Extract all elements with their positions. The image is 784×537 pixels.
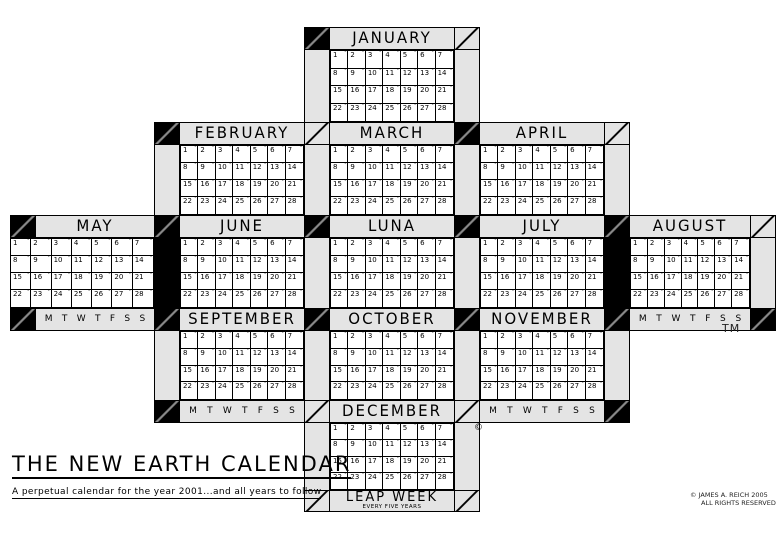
- day-cell: 28: [286, 290, 303, 307]
- day-cell: 13: [418, 440, 435, 456]
- day-number: 27: [114, 291, 123, 298]
- day-cell: 5: [251, 332, 268, 349]
- day-number: 26: [253, 383, 262, 390]
- month-title-bar: MAY: [36, 215, 154, 238]
- day-cell: 7: [586, 332, 603, 349]
- day-number: 19: [403, 458, 412, 465]
- day-cell: 8: [331, 163, 348, 180]
- day-number: 16: [200, 367, 209, 374]
- day-number: 20: [420, 274, 429, 281]
- day-cell: 10: [216, 256, 233, 273]
- day-cell: 11: [72, 256, 92, 273]
- day-cell: 17: [516, 180, 533, 197]
- day-cell: 26: [251, 290, 268, 307]
- day-number: 21: [438, 181, 447, 188]
- day-cell: 14: [286, 349, 303, 366]
- day-number: 21: [588, 274, 597, 281]
- day-cell: 21: [586, 180, 603, 197]
- day-number: 24: [518, 383, 527, 390]
- day-cell: 23: [31, 290, 51, 307]
- day-cell: 18: [533, 273, 550, 290]
- day-number: 20: [114, 274, 123, 281]
- day-cell: 6: [418, 146, 435, 163]
- corner-square: [304, 215, 330, 238]
- corner-square-diagonal: [304, 400, 330, 423]
- day-number: 9: [200, 257, 204, 264]
- weekday-footer: MTWTFSS: [454, 400, 630, 423]
- weekday-label: M: [45, 315, 53, 324]
- day-number: 9: [350, 70, 354, 77]
- day-number: 7: [438, 240, 442, 247]
- day-number: 13: [420, 70, 429, 77]
- day-cell: 8: [331, 349, 348, 366]
- day-cell: 26: [551, 197, 568, 214]
- day-number: 22: [333, 291, 342, 298]
- day-number: 10: [368, 257, 377, 264]
- day-number: 27: [420, 383, 429, 390]
- weekday-label: T: [507, 407, 513, 416]
- day-cell: 18: [383, 366, 400, 383]
- month-grid-row: 1234567891011121314151617181920212223242…: [454, 145, 630, 215]
- day-number: 13: [717, 257, 726, 264]
- corner-square-diagonal: [454, 490, 480, 512]
- day-cell: 6: [568, 332, 585, 349]
- side-strip: [454, 50, 480, 122]
- day-number: 21: [135, 274, 144, 281]
- day-cell: 14: [586, 256, 603, 273]
- day-number: 10: [368, 441, 377, 448]
- corner-square-diagonal: [304, 122, 330, 145]
- month-title: APRIL: [516, 126, 569, 142]
- corner-square: [454, 215, 480, 238]
- day-cell: 20: [418, 273, 435, 290]
- day-cell: 26: [401, 382, 418, 399]
- corner-square: [604, 215, 630, 238]
- day-cell: 21: [286, 366, 303, 383]
- day-cell: 15: [631, 273, 648, 290]
- month-title: NOVEMBER: [491, 312, 593, 328]
- month-title-bar: MARCH: [330, 122, 454, 145]
- day-cell: 14: [732, 256, 749, 273]
- day-number: 22: [333, 198, 342, 205]
- day-cell: 6: [568, 146, 585, 163]
- day-cell: 1: [331, 51, 348, 69]
- day-number: 15: [183, 367, 192, 374]
- day-cell: 18: [533, 366, 550, 383]
- day-cell: 12: [551, 349, 568, 366]
- day-number: 16: [200, 181, 209, 188]
- day-cell: 4: [233, 239, 250, 256]
- day-number: 25: [535, 198, 544, 205]
- day-cell: 10: [366, 440, 383, 456]
- day-cell: 2: [198, 146, 215, 163]
- calendar-poster: JANUARY123456789101112131415161718192021…: [0, 0, 784, 537]
- day-cell: 14: [286, 256, 303, 273]
- day-cell: 2: [348, 51, 365, 69]
- corner-square: [454, 122, 480, 145]
- day-cell: 5: [401, 146, 418, 163]
- day-grid: 1234567891011121314151617181920212223242…: [480, 238, 604, 308]
- day-number: 16: [350, 181, 359, 188]
- day-cell: 24: [516, 197, 533, 214]
- corner-square: [154, 400, 180, 423]
- day-number: 19: [94, 274, 103, 281]
- day-cell: 1: [181, 332, 198, 349]
- day-number: 4: [385, 52, 389, 59]
- day-cell: 25: [383, 473, 400, 489]
- day-cell: 6: [268, 146, 285, 163]
- day-number: 26: [553, 198, 562, 205]
- month-title: JULY: [523, 219, 562, 235]
- day-cell: 28: [436, 104, 453, 122]
- day-number: 9: [350, 350, 354, 357]
- day-number: 13: [420, 257, 429, 264]
- day-number: 23: [500, 291, 509, 298]
- day-cell: 13: [418, 69, 435, 87]
- day-cell: 10: [516, 349, 533, 366]
- day-cell: 8: [331, 69, 348, 87]
- day-cell: 13: [418, 349, 435, 366]
- day-number: 18: [235, 367, 244, 374]
- day-number: 21: [288, 274, 297, 281]
- day-number: 3: [518, 147, 522, 154]
- day-number: 14: [438, 164, 447, 171]
- day-cell: 23: [348, 382, 365, 399]
- day-cell: 26: [401, 197, 418, 214]
- day-number: 13: [270, 350, 279, 357]
- day-cell: 18: [383, 86, 400, 104]
- weekday-label: T: [95, 315, 101, 324]
- day-cell: 15: [331, 180, 348, 197]
- day-number: 26: [253, 198, 262, 205]
- day-cell: 20: [568, 273, 585, 290]
- day-number: 4: [385, 425, 389, 432]
- day-number: 17: [218, 274, 227, 281]
- day-cell: 7: [286, 332, 303, 349]
- day-number: 22: [183, 383, 192, 390]
- day-cell: 3: [516, 146, 533, 163]
- day-cell: 24: [516, 382, 533, 399]
- day-cell: 24: [216, 197, 233, 214]
- day-cell: 6: [418, 332, 435, 349]
- day-cell: 28: [586, 290, 603, 307]
- day-cell: 20: [268, 180, 285, 197]
- day-cell: 8: [181, 256, 198, 273]
- day-cell: 19: [551, 366, 568, 383]
- day-number: 6: [570, 147, 574, 154]
- day-number: 28: [438, 474, 447, 481]
- day-number: 12: [403, 70, 412, 77]
- day-number: 18: [385, 458, 394, 465]
- day-number: 11: [74, 257, 83, 264]
- day-grid: 1234567891011121314151617181920212223242…: [330, 238, 454, 308]
- day-number: 5: [553, 240, 557, 247]
- day-cell: 9: [198, 163, 215, 180]
- day-number: 8: [183, 350, 187, 357]
- day-number: 26: [403, 105, 412, 112]
- day-number: 19: [403, 87, 412, 94]
- day-number: 1: [183, 240, 187, 247]
- day-cell: 23: [648, 290, 665, 307]
- day-cell: 13: [268, 163, 285, 180]
- day-cell: 15: [11, 273, 31, 290]
- day-number: 15: [483, 367, 492, 374]
- day-number: 13: [114, 257, 123, 264]
- day-number: 5: [253, 333, 257, 340]
- day-number: 3: [218, 147, 222, 154]
- day-number: 18: [535, 181, 544, 188]
- day-cell: 1: [481, 146, 498, 163]
- day-cell: 19: [401, 86, 418, 104]
- day-number: 24: [368, 105, 377, 112]
- day-number: 6: [420, 52, 424, 59]
- day-cell: 11: [233, 256, 250, 273]
- day-cell: 1: [481, 332, 498, 349]
- day-cell: 20: [568, 180, 585, 197]
- day-number: 11: [385, 350, 394, 357]
- day-cell: 14: [586, 349, 603, 366]
- day-cell: 2: [648, 239, 665, 256]
- day-number: 12: [94, 257, 103, 264]
- day-number: 21: [588, 181, 597, 188]
- month-title: OCTOBER: [348, 312, 435, 328]
- day-number: 14: [438, 350, 447, 357]
- day-cell: 8: [631, 256, 648, 273]
- day-cell: 20: [418, 366, 435, 383]
- day-number: 11: [684, 257, 693, 264]
- day-cell: 2: [498, 332, 515, 349]
- day-number: 28: [734, 291, 743, 298]
- day-cell: 16: [198, 366, 215, 383]
- day-cell: 19: [698, 273, 715, 290]
- day-number: 28: [438, 198, 447, 205]
- day-number: 6: [270, 240, 274, 247]
- day-cell: 9: [498, 256, 515, 273]
- day-cell: 8: [481, 163, 498, 180]
- day-cell: 1: [331, 424, 348, 440]
- day-number: 24: [518, 198, 527, 205]
- day-grid: 1234567891011121314151617181920212223242…: [330, 145, 454, 215]
- day-cell: 12: [401, 440, 418, 456]
- day-number: 14: [734, 257, 743, 264]
- day-cell: 21: [436, 366, 453, 383]
- day-number: 28: [438, 291, 447, 298]
- day-number: 18: [535, 274, 544, 281]
- day-number: 25: [235, 198, 244, 205]
- day-number: 14: [288, 257, 297, 264]
- day-cell: 3: [216, 146, 233, 163]
- day-cell: 1: [331, 239, 348, 256]
- day-cell: 6: [268, 239, 285, 256]
- weekday-label: S: [273, 407, 279, 416]
- day-number: 21: [438, 458, 447, 465]
- day-number: 28: [438, 105, 447, 112]
- day-number: 20: [420, 181, 429, 188]
- day-cell: 27: [418, 382, 435, 399]
- day-cell: 26: [251, 197, 268, 214]
- day-number: 8: [333, 70, 337, 77]
- day-cell: 6: [568, 239, 585, 256]
- day-number: 24: [368, 198, 377, 205]
- day-number: 4: [235, 240, 239, 247]
- day-number: 17: [368, 181, 377, 188]
- day-cell: 9: [348, 256, 365, 273]
- day-cell: 25: [533, 290, 550, 307]
- day-cell: 10: [366, 163, 383, 180]
- day-number: 8: [483, 350, 487, 357]
- day-cell: 11: [533, 163, 550, 180]
- day-cell: 15: [331, 86, 348, 104]
- day-cell: 9: [198, 349, 215, 366]
- day-number: 15: [333, 181, 342, 188]
- day-number: 8: [333, 164, 337, 171]
- day-cell: 4: [682, 239, 699, 256]
- month-grid-row: 1234567891011121314151617181920212223242…: [454, 331, 630, 400]
- corner-square: [304, 308, 330, 331]
- day-cell: 27: [418, 290, 435, 307]
- day-cell: 25: [233, 382, 250, 399]
- day-cell: 14: [133, 256, 153, 273]
- day-number: 12: [553, 257, 562, 264]
- day-cell: 5: [551, 332, 568, 349]
- day-number: 12: [253, 350, 262, 357]
- day-cell: 19: [251, 180, 268, 197]
- day-cell: 22: [331, 382, 348, 399]
- day-number: 14: [438, 70, 447, 77]
- day-number: 6: [420, 425, 424, 432]
- day-cell: 28: [436, 197, 453, 214]
- day-number: 22: [333, 105, 342, 112]
- day-cell: 13: [418, 163, 435, 180]
- day-number: 20: [420, 87, 429, 94]
- day-cell: 13: [715, 256, 732, 273]
- day-cell: 23: [498, 290, 515, 307]
- day-cell: 6: [418, 239, 435, 256]
- day-number: 13: [270, 257, 279, 264]
- day-cell: 23: [348, 197, 365, 214]
- weekday-label: W: [523, 407, 532, 416]
- day-cell: 20: [112, 273, 132, 290]
- day-cell: 9: [348, 69, 365, 87]
- day-cell: 1: [331, 332, 348, 349]
- day-number: 7: [288, 240, 292, 247]
- day-cell: 13: [268, 256, 285, 273]
- day-number: 1: [483, 147, 487, 154]
- day-number: 15: [483, 274, 492, 281]
- day-number: 5: [553, 333, 557, 340]
- month-header: APRIL: [454, 122, 630, 145]
- weekday-label: S: [124, 315, 130, 324]
- month-title-bar: DECEMBER: [330, 400, 454, 423]
- day-cell: 15: [481, 273, 498, 290]
- day-number: 27: [570, 198, 579, 205]
- day-cell: 1: [631, 239, 648, 256]
- day-number: 20: [270, 274, 279, 281]
- day-cell: 28: [436, 473, 453, 489]
- day-number: 24: [368, 474, 377, 481]
- day-cell: 23: [498, 197, 515, 214]
- day-number: 17: [368, 87, 377, 94]
- day-cell: 15: [481, 366, 498, 383]
- day-number: 13: [420, 164, 429, 171]
- day-number: 26: [403, 291, 412, 298]
- day-cell: 20: [268, 273, 285, 290]
- day-grid: 1234567891011121314151617181920212223242…: [180, 238, 304, 308]
- day-cell: 19: [92, 273, 112, 290]
- day-cell: 4: [533, 146, 550, 163]
- day-cell: 28: [586, 382, 603, 399]
- day-number: 17: [368, 458, 377, 465]
- day-number: 24: [54, 291, 63, 298]
- day-cell: 5: [401, 424, 418, 440]
- day-number: 18: [684, 274, 693, 281]
- day-cell: 19: [251, 366, 268, 383]
- month-grid-row: 1234567891011121314151617181920212223242…: [304, 50, 480, 122]
- day-cell: 4: [383, 239, 400, 256]
- day-cell: 2: [348, 424, 365, 440]
- day-cell: 26: [401, 104, 418, 122]
- day-cell: 10: [366, 349, 383, 366]
- weekday-label: S: [289, 407, 295, 416]
- day-cell: 21: [436, 180, 453, 197]
- day-number: 6: [270, 147, 274, 154]
- day-cell: 11: [383, 440, 400, 456]
- day-cell: 4: [533, 239, 550, 256]
- day-number: 18: [385, 367, 394, 374]
- day-cell: 1: [11, 239, 31, 256]
- day-cell: 18: [72, 273, 92, 290]
- day-cell: 27: [268, 290, 285, 307]
- day-cell: 6: [418, 424, 435, 440]
- day-number: 1: [633, 240, 637, 247]
- corner-square-diagonal: [604, 122, 630, 145]
- day-number: 4: [535, 147, 539, 154]
- day-number: 25: [385, 474, 394, 481]
- day-number: 8: [333, 350, 337, 357]
- day-cell: 12: [401, 163, 418, 180]
- corner-square: [154, 122, 180, 145]
- day-number: 24: [218, 291, 227, 298]
- day-number: 21: [734, 274, 743, 281]
- day-number: 11: [235, 257, 244, 264]
- day-cell: 2: [498, 146, 515, 163]
- day-number: 8: [333, 257, 337, 264]
- day-cell: 7: [436, 51, 453, 69]
- side-strip: [750, 238, 776, 308]
- day-number: 26: [553, 291, 562, 298]
- day-number: 22: [183, 198, 192, 205]
- day-number: 5: [403, 240, 407, 247]
- day-number: 28: [588, 383, 597, 390]
- day-number: 4: [535, 333, 539, 340]
- day-cell: 24: [366, 104, 383, 122]
- day-cell: 15: [181, 273, 198, 290]
- day-number: 18: [235, 181, 244, 188]
- side-strip: [154, 331, 180, 400]
- day-number: 7: [288, 333, 292, 340]
- day-cell: 21: [436, 273, 453, 290]
- day-number: 3: [368, 425, 372, 432]
- day-number: 2: [500, 333, 504, 340]
- day-number: 24: [518, 291, 527, 298]
- day-number: 18: [74, 274, 83, 281]
- day-number: 12: [403, 441, 412, 448]
- day-number: 12: [403, 257, 412, 264]
- month-november: NOVEMBER12345678910111213141516171819202…: [454, 308, 630, 423]
- day-number: 4: [385, 240, 389, 247]
- day-number: 6: [420, 333, 424, 340]
- day-number: 5: [553, 147, 557, 154]
